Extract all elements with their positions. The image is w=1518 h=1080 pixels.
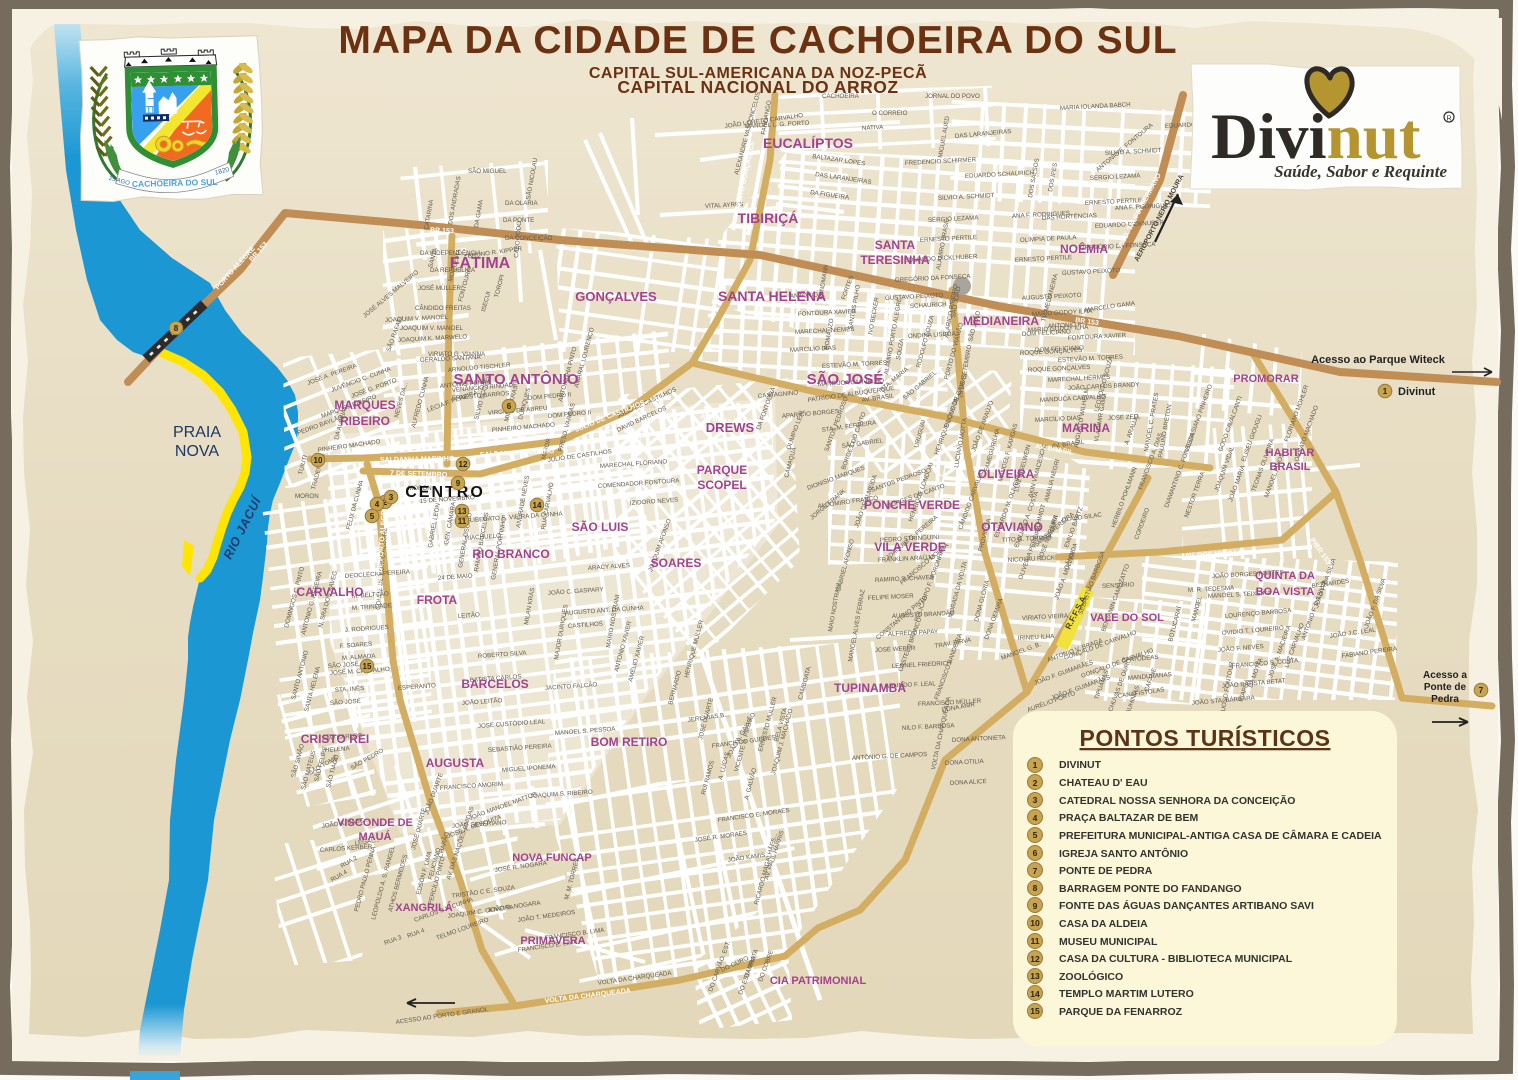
svg-text:BR 153: BR 153 [430,227,454,235]
svg-text:CARVALHO: CARVALHO [297,585,364,599]
svg-text:MARQUES: MARQUES [334,398,395,412]
svg-text:3: 3 [1033,795,1038,805]
svg-text:DA CONCEIÇÃO: DA CONCEIÇÃO [505,235,553,242]
svg-text:SOARES: SOARES [651,556,702,570]
svg-text:MAUÁ: MAUÁ [359,830,392,843]
svg-text:4: 4 [375,500,380,509]
svg-text:5: 5 [1033,830,1038,840]
svg-text:1: 1 [1033,760,1038,770]
svg-text:14: 14 [533,501,542,510]
svg-text:AUGUSTA: AUGUSTA [426,756,485,770]
svg-text:PARQUE: PARQUE [697,463,747,477]
svg-text:2: 2 [1033,778,1038,788]
svg-text:TIBIRIÇÁ: TIBIRIÇÁ [738,210,799,226]
svg-text:SÃO JOSÉ: SÃO JOSÉ [807,370,884,388]
svg-text:DREWS: DREWS [706,420,755,435]
svg-text:RIO BRANCO: RIO BRANCO [472,547,549,561]
svg-text:3: 3 [389,493,394,502]
svg-text:MORON: MORON [295,493,319,500]
svg-text:GONÇALVES: GONÇALVES [575,289,657,304]
svg-text:CRISTO REI: CRISTO REI [301,732,369,746]
svg-text:13: 13 [1030,971,1040,981]
svg-text:MUSEU MUNICIPAL: MUSEU MUNICIPAL [1059,936,1158,948]
svg-text:Acesso ao Parque Witeck: Acesso ao Parque Witeck [1311,354,1446,366]
svg-text:Pedra: Pedra [1431,694,1459,705]
svg-text:11: 11 [458,517,467,526]
svg-text:DA OLARIA: DA OLARIA [505,200,539,207]
svg-text:VILA VERDE: VILA VERDE [874,540,946,554]
svg-text:12: 12 [1030,954,1040,964]
svg-text:BARRAGEM PONTE DO FANDANGO: BARRAGEM PONTE DO FANDANGO [1059,883,1242,895]
svg-text:NOÊMIA: NOÊMIA [1060,241,1108,256]
svg-text:BOA VISTA: BOA VISTA [1256,586,1315,598]
svg-text:CÂNDIDO FREITAS: CÂNDIDO FREITAS [415,305,471,312]
svg-text:JOAQUIM V. MANOEL: JOAQUIM V. MANOEL [400,325,464,332]
svg-text:FÁTIMA: FÁTIMA [450,253,511,272]
svg-text:SÃO LUIS: SÃO LUIS [572,519,629,534]
svg-text:R: R [1446,116,1451,123]
svg-text:MAPA DA CIDADE DE CACHOEIRA DO: MAPA DA CIDADE DE CACHOEIRA DO SUL [338,19,1177,62]
svg-text:1: 1 [1383,387,1388,396]
svg-text:JORNAL DO POVO: JORNAL DO POVO [925,93,980,100]
svg-text:PONCHE VERDE: PONCHE VERDE [864,498,960,512]
svg-text:IGREJA SANTO ANTÔNIO: IGREJA SANTO ANTÔNIO [1059,847,1188,860]
svg-text:JOSÉ MÜLLER: JOSÉ MÜLLER [418,285,462,292]
svg-text:CATEDRAL NOSSA SENHORA DA CONC: CATEDRAL NOSSA SENHORA DA CONCEIÇÃO [1059,794,1295,807]
svg-text:TEMPLO MARTIM LUTERO: TEMPLO MARTIM LUTERO [1059,988,1194,1000]
svg-text:TERESINHA: TERESINHA [860,253,930,267]
svg-text:9: 9 [456,479,461,488]
svg-text:6: 6 [1033,848,1038,858]
svg-text:HABITAR: HABITAR [1266,447,1315,459]
svg-text:OTAVIANO: OTAVIANO [981,520,1043,534]
svg-text:RIBEIRO: RIBEIRO [340,414,390,428]
svg-text:NOVA: NOVA [175,443,219,460]
svg-text:PRAIA: PRAIA [173,424,221,441]
svg-text:VALE DO SOL: VALE DO SOL [1090,612,1164,624]
svg-text:MEDIANEIRA: MEDIANEIRA [963,314,1039,328]
svg-text:DA PONTE: DA PONTE [503,217,534,224]
svg-text:VISCONDE DE: VISCONDE DE [337,817,413,829]
svg-text:BARCELOS: BARCELOS [461,677,528,691]
svg-text:9: 9 [1033,901,1038,911]
svg-text:8: 8 [1033,883,1038,893]
svg-text:PROMORAR: PROMORAR [1233,373,1298,385]
svg-text:PRIMAVERA: PRIMAVERA [520,935,585,947]
svg-text:FROTA: FROTA [417,593,458,607]
svg-text:MARINA: MARINA [1062,421,1110,435]
svg-text:8: 8 [174,324,179,333]
svg-text:Ponte de: Ponte de [1424,682,1467,693]
svg-text:Acesso a: Acesso a [1423,670,1467,681]
svg-text:10: 10 [314,456,323,465]
svg-text:12: 12 [459,460,468,469]
svg-text:7: 7 [1033,866,1038,876]
svg-text:SCOPEL: SCOPEL [697,478,746,492]
svg-text:CASA DA ALDEIA: CASA DA ALDEIA [1059,918,1148,930]
svg-text:TUPINAMBÁ: TUPINAMBÁ [834,680,906,695]
svg-text:BRASIL: BRASIL [1270,461,1311,473]
svg-text:PARQUE DA FENARROZ: PARQUE DA FENARROZ [1059,1006,1183,1018]
svg-text:7: 7 [1479,686,1484,695]
svg-text:CAPITAL NACIONAL DO ARROZ: CAPITAL NACIONAL DO ARROZ [617,77,898,97]
svg-text:BOM RETIRO: BOM RETIRO [591,735,668,749]
svg-text:XANGRILÁ: XANGRILÁ [395,901,453,914]
svg-text:4: 4 [1033,813,1038,823]
svg-text:CHATEAU D' EAU: CHATEAU D' EAU [1059,777,1148,789]
svg-text:Saúde, Sabor e Requinte: Saúde, Sabor e Requinte [1274,162,1447,181]
svg-text:O CORREIO: O CORREIO [872,110,908,117]
svg-text:NOVA FUNCAP: NOVA FUNCAP [512,852,591,864]
svg-text:SALDANHA MARINHO: SALDANHA MARINHO [380,456,455,464]
svg-text:13: 13 [458,507,467,516]
svg-text:PRAÇA BALTAZAR DE BEM: PRAÇA BALTAZAR DE BEM [1059,812,1198,824]
svg-text:SÃO MIGUEL: SÃO MIGUEL [468,168,507,175]
svg-text:Divinut: Divinut [1398,386,1436,398]
svg-text:PONTE DE PEDRA: PONTE DE PEDRA [1059,865,1153,877]
svg-text:OLIVEIRA: OLIVEIRA [978,467,1035,481]
svg-text:DIVINUT: DIVINUT [1059,759,1102,771]
svg-text:6: 6 [507,402,512,411]
svg-text:SANTA HELENA: SANTA HELENA [718,288,826,304]
svg-text:CIA PATRIMONIAL: CIA PATRIMONIAL [770,975,867,987]
svg-text:EUCALÍPTOS: EUCALÍPTOS [763,135,853,151]
svg-text:11: 11 [1031,936,1040,946]
svg-text:5: 5 [370,512,375,521]
svg-text:15: 15 [1030,1006,1040,1016]
svg-text:SANTA: SANTA [875,238,916,252]
svg-text:ZOOLÓGICO: ZOOLÓGICO [1059,970,1123,983]
svg-text:10: 10 [1030,918,1040,928]
svg-text:CASA DA CULTURA - BIBLIOTECA M: CASA DA CULTURA - BIBLIOTECA MUNICIPAL [1059,953,1293,965]
svg-text:QUINTA DA: QUINTA DA [1255,570,1315,582]
svg-text:PONTOS TURÍSTICOS: PONTOS TURÍSTICOS [1080,724,1331,751]
svg-text:14: 14 [1030,989,1040,999]
svg-text:FONTE DAS ÁGUAS DANÇANTES ARTI: FONTE DAS ÁGUAS DANÇANTES ARTIBANO SAVI [1059,899,1314,912]
svg-text:CENTRO: CENTRO [405,484,485,501]
svg-text:15: 15 [363,662,372,671]
svg-text:PREFEITURA MUNICIPAL-ANTIGA CA: PREFEITURA MUNICIPAL-ANTIGA CASA DE CÂMA… [1059,829,1382,842]
svg-text:SANTO ANTÔNIO: SANTO ANTÔNIO [453,370,578,388]
svg-text:NATIVA: NATIVA [862,124,885,132]
